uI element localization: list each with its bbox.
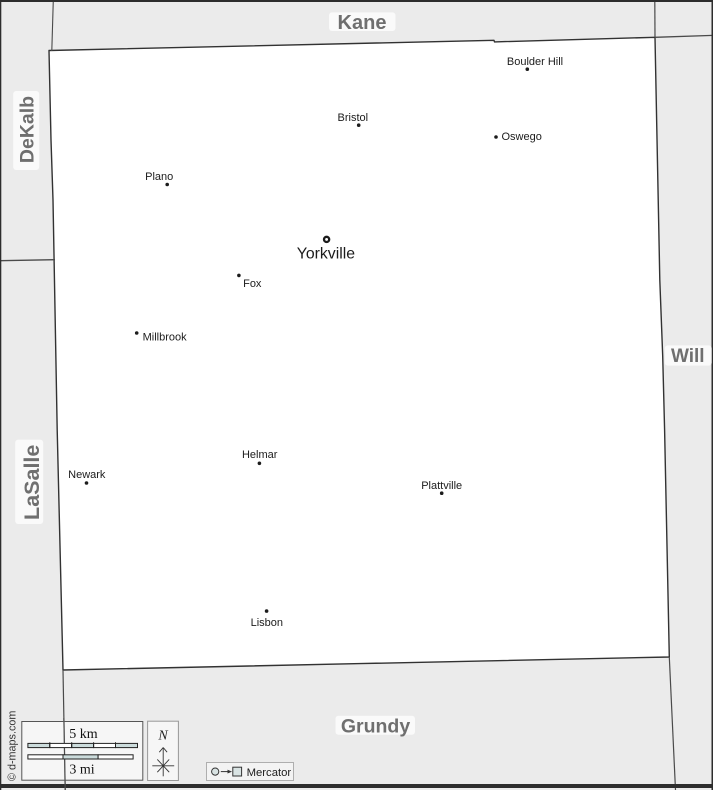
svg-text:Grundy: Grundy	[341, 715, 410, 737]
svg-text:Oswego: Oswego	[502, 131, 542, 143]
svg-text:5 km: 5 km	[69, 727, 98, 742]
svg-text:Lisbon: Lisbon	[251, 617, 283, 629]
svg-text:Plattville: Plattville	[421, 480, 462, 492]
svg-text:Millbrook: Millbrook	[143, 331, 188, 343]
svg-text:N: N	[157, 729, 168, 744]
svg-text:Kane: Kane	[338, 12, 387, 34]
svg-text:© d-maps.com: © d-maps.com	[7, 711, 19, 781]
svg-text:Will: Will	[671, 346, 705, 367]
svg-text:Plano: Plano	[145, 171, 173, 183]
svg-text:Fox: Fox	[243, 278, 262, 290]
svg-text:Helmar: Helmar	[242, 449, 278, 461]
svg-text:LaSalle: LaSalle	[20, 445, 44, 520]
svg-text:Newark: Newark	[68, 469, 106, 481]
svg-text:Boulder Hill: Boulder Hill	[507, 56, 563, 68]
svg-text:Bristol: Bristol	[338, 112, 369, 124]
svg-text:DeKalb: DeKalb	[16, 96, 38, 163]
svg-text:3 mi: 3 mi	[69, 762, 94, 777]
svg-text:Yorkville: Yorkville	[297, 246, 355, 263]
svg-text:Mercator: Mercator	[247, 767, 292, 779]
